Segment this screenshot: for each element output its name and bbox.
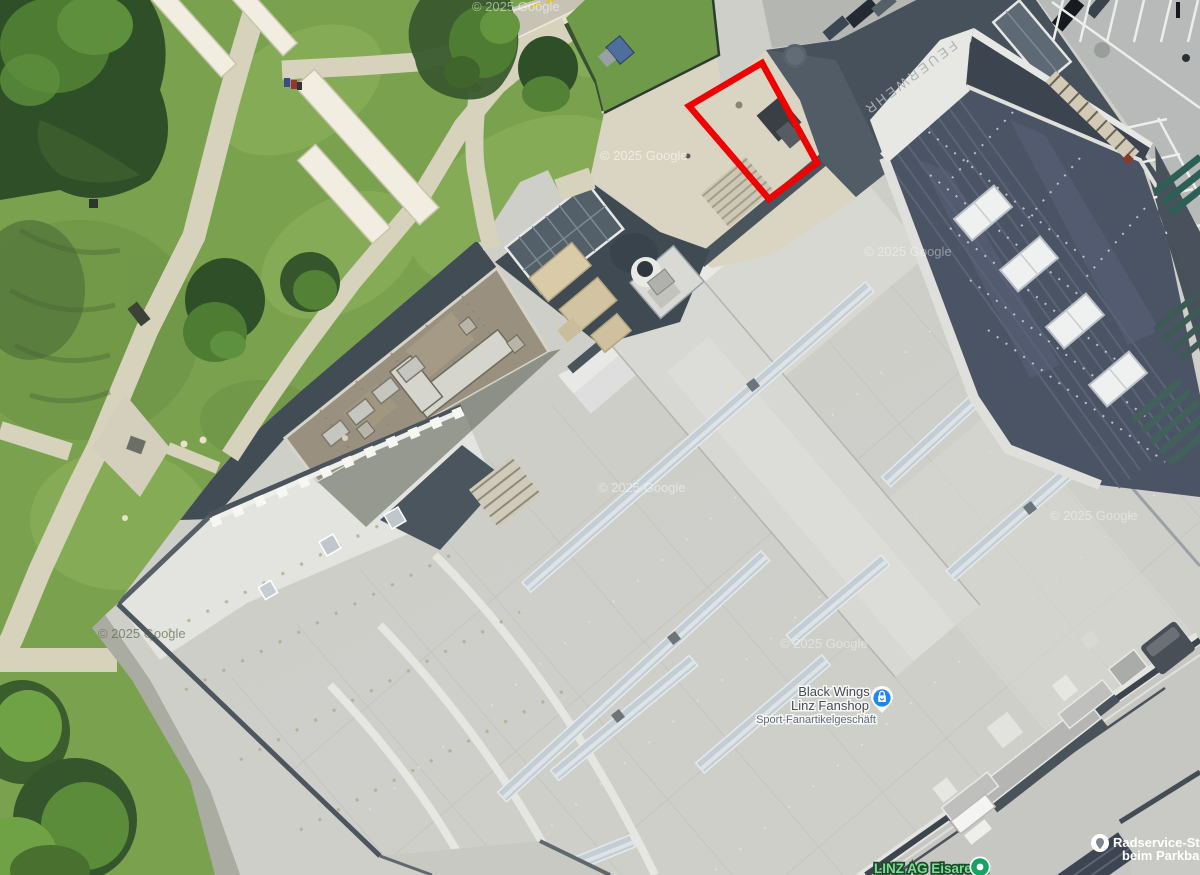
svg-text:© 2025 Google: © 2025 Google [780, 636, 868, 651]
svg-text:© 2025 Google: © 2025 Google [98, 626, 186, 641]
svg-text:© 2025 Google: © 2025 Google [472, 0, 560, 14]
svg-text:© 2025 Google: © 2025 Google [600, 148, 688, 163]
svg-text:beim Parkbad: beim Parkbad [1122, 848, 1200, 863]
svg-text:Linz Fanshop: Linz Fanshop [791, 698, 869, 713]
svg-text:© 2025 Google: © 2025 Google [598, 480, 686, 495]
svg-text:Black Wings: Black Wings [798, 684, 870, 699]
svg-text:© 2025 Google: © 2025 Google [1050, 508, 1138, 523]
svg-text:© 2025 Google: © 2025 Google [864, 244, 952, 259]
svg-text:Sport-Fanartikelgeschäft: Sport-Fanartikelgeschäft [756, 714, 876, 726]
